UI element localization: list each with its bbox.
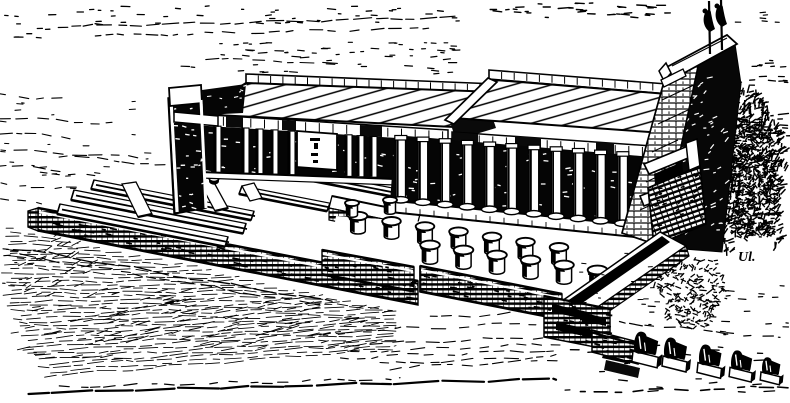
svg-text:Ul.: Ul. — [738, 250, 756, 265]
